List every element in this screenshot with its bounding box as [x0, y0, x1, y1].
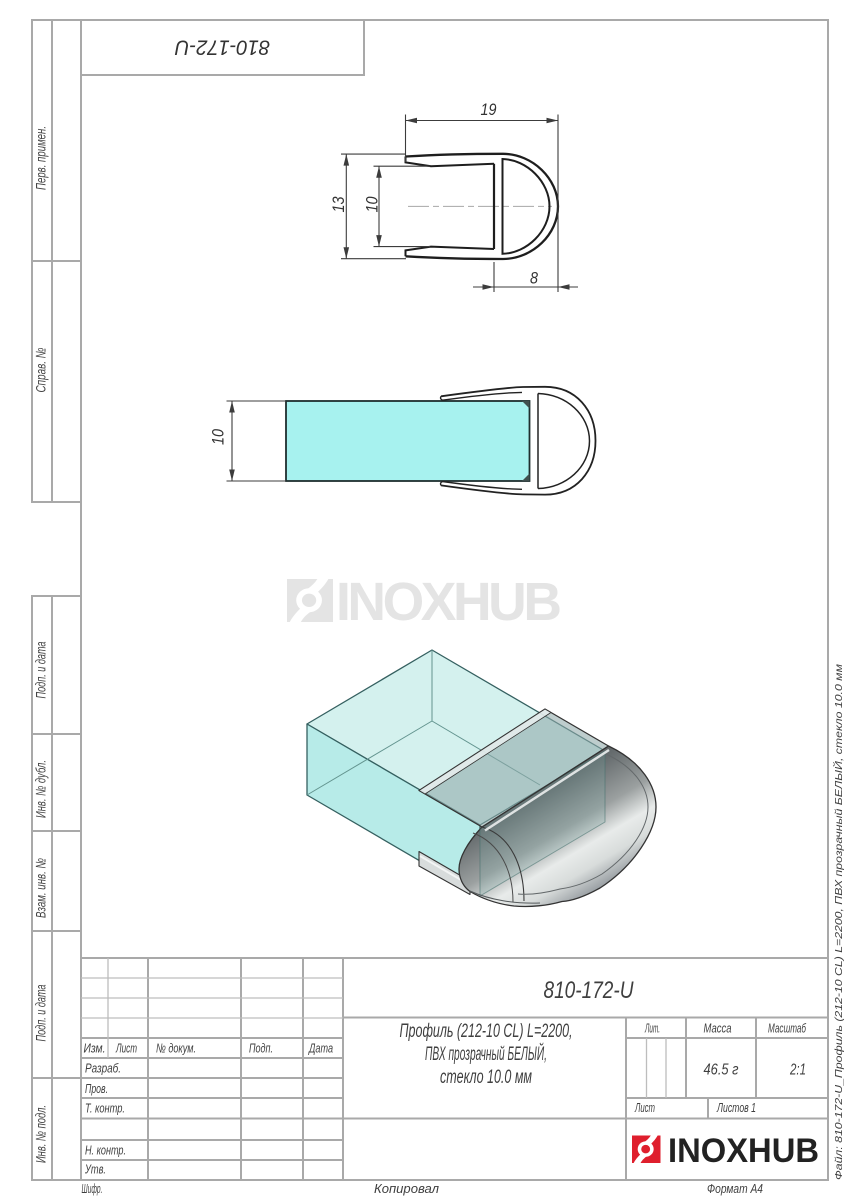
- svg-text:Листов 1: Листов 1: [716, 1100, 756, 1115]
- svg-text:Файл: 810-172-U_Профиль (212-1: Файл: 810-172-U_Профиль (212-10 CL) L=22…: [832, 664, 845, 1180]
- svg-text:Подп. и дата: Подп. и дата: [33, 984, 49, 1041]
- svg-text:Лист: Лист: [115, 1041, 137, 1056]
- svg-text:810-172-U: 810-172-U: [544, 977, 635, 1004]
- svg-text:Н. контр.: Н. контр.: [85, 1143, 126, 1158]
- svg-text:Формат А4: Формат А4: [707, 1182, 763, 1196]
- svg-text:Масштаб: Масштаб: [768, 1021, 806, 1036]
- svg-text:Справ. №: Справ. №: [33, 348, 49, 393]
- svg-text:Шифр.: Шифр.: [82, 1182, 103, 1196]
- svg-text:Инв. № дубл.: Инв. № дубл.: [33, 760, 49, 818]
- svg-text:Дата: Дата: [308, 1041, 333, 1056]
- svg-text:Инв. № подл.: Инв. № подл.: [33, 1105, 49, 1163]
- svg-text:19: 19: [481, 100, 497, 119]
- svg-text:№ докум.: № докум.: [156, 1041, 196, 1056]
- svg-text:Профиль (212-10 CL) L=2200,: Профиль (212-10 CL) L=2200,: [400, 1020, 573, 1042]
- svg-text:Т. контр.: Т. контр.: [85, 1101, 125, 1116]
- svg-text:стекло 10.0 мм: стекло 10.0 мм: [440, 1066, 532, 1088]
- svg-text:10: 10: [363, 196, 382, 212]
- svg-text:Изм.: Изм.: [84, 1041, 106, 1056]
- svg-text:Пров.: Пров.: [85, 1081, 108, 1096]
- svg-text:46.5 г: 46.5 г: [704, 1062, 739, 1079]
- svg-text:Перв. примен.: Перв. примен.: [33, 126, 49, 190]
- svg-text:Копировал: Копировал: [374, 1182, 439, 1196]
- svg-text:Разраб.: Разраб.: [85, 1061, 121, 1076]
- svg-text:Взам. инв. №: Взам. инв. №: [33, 858, 49, 918]
- svg-text:Лист: Лист: [634, 1100, 655, 1115]
- svg-text:8: 8: [530, 269, 538, 288]
- svg-text:10: 10: [209, 429, 228, 445]
- svg-text:ПВХ прозрачный БЕЛЫЙ,: ПВХ прозрачный БЕЛЫЙ,: [425, 1042, 547, 1065]
- svg-text:2:1: 2:1: [789, 1062, 806, 1079]
- svg-text:810-172-U: 810-172-U: [174, 36, 270, 59]
- svg-text:Утв.: Утв.: [84, 1162, 106, 1177]
- svg-text:Лит.: Лит.: [645, 1021, 660, 1036]
- svg-text:Подп.: Подп.: [249, 1041, 273, 1056]
- svg-text:INOXHUB: INOXHUB: [336, 573, 562, 632]
- svg-text:Подп. и дата: Подп. и дата: [33, 641, 49, 698]
- svg-text:Масса: Масса: [704, 1021, 732, 1036]
- svg-text:INOXHUB: INOXHUB: [668, 1132, 819, 1170]
- svg-text:13: 13: [329, 196, 348, 212]
